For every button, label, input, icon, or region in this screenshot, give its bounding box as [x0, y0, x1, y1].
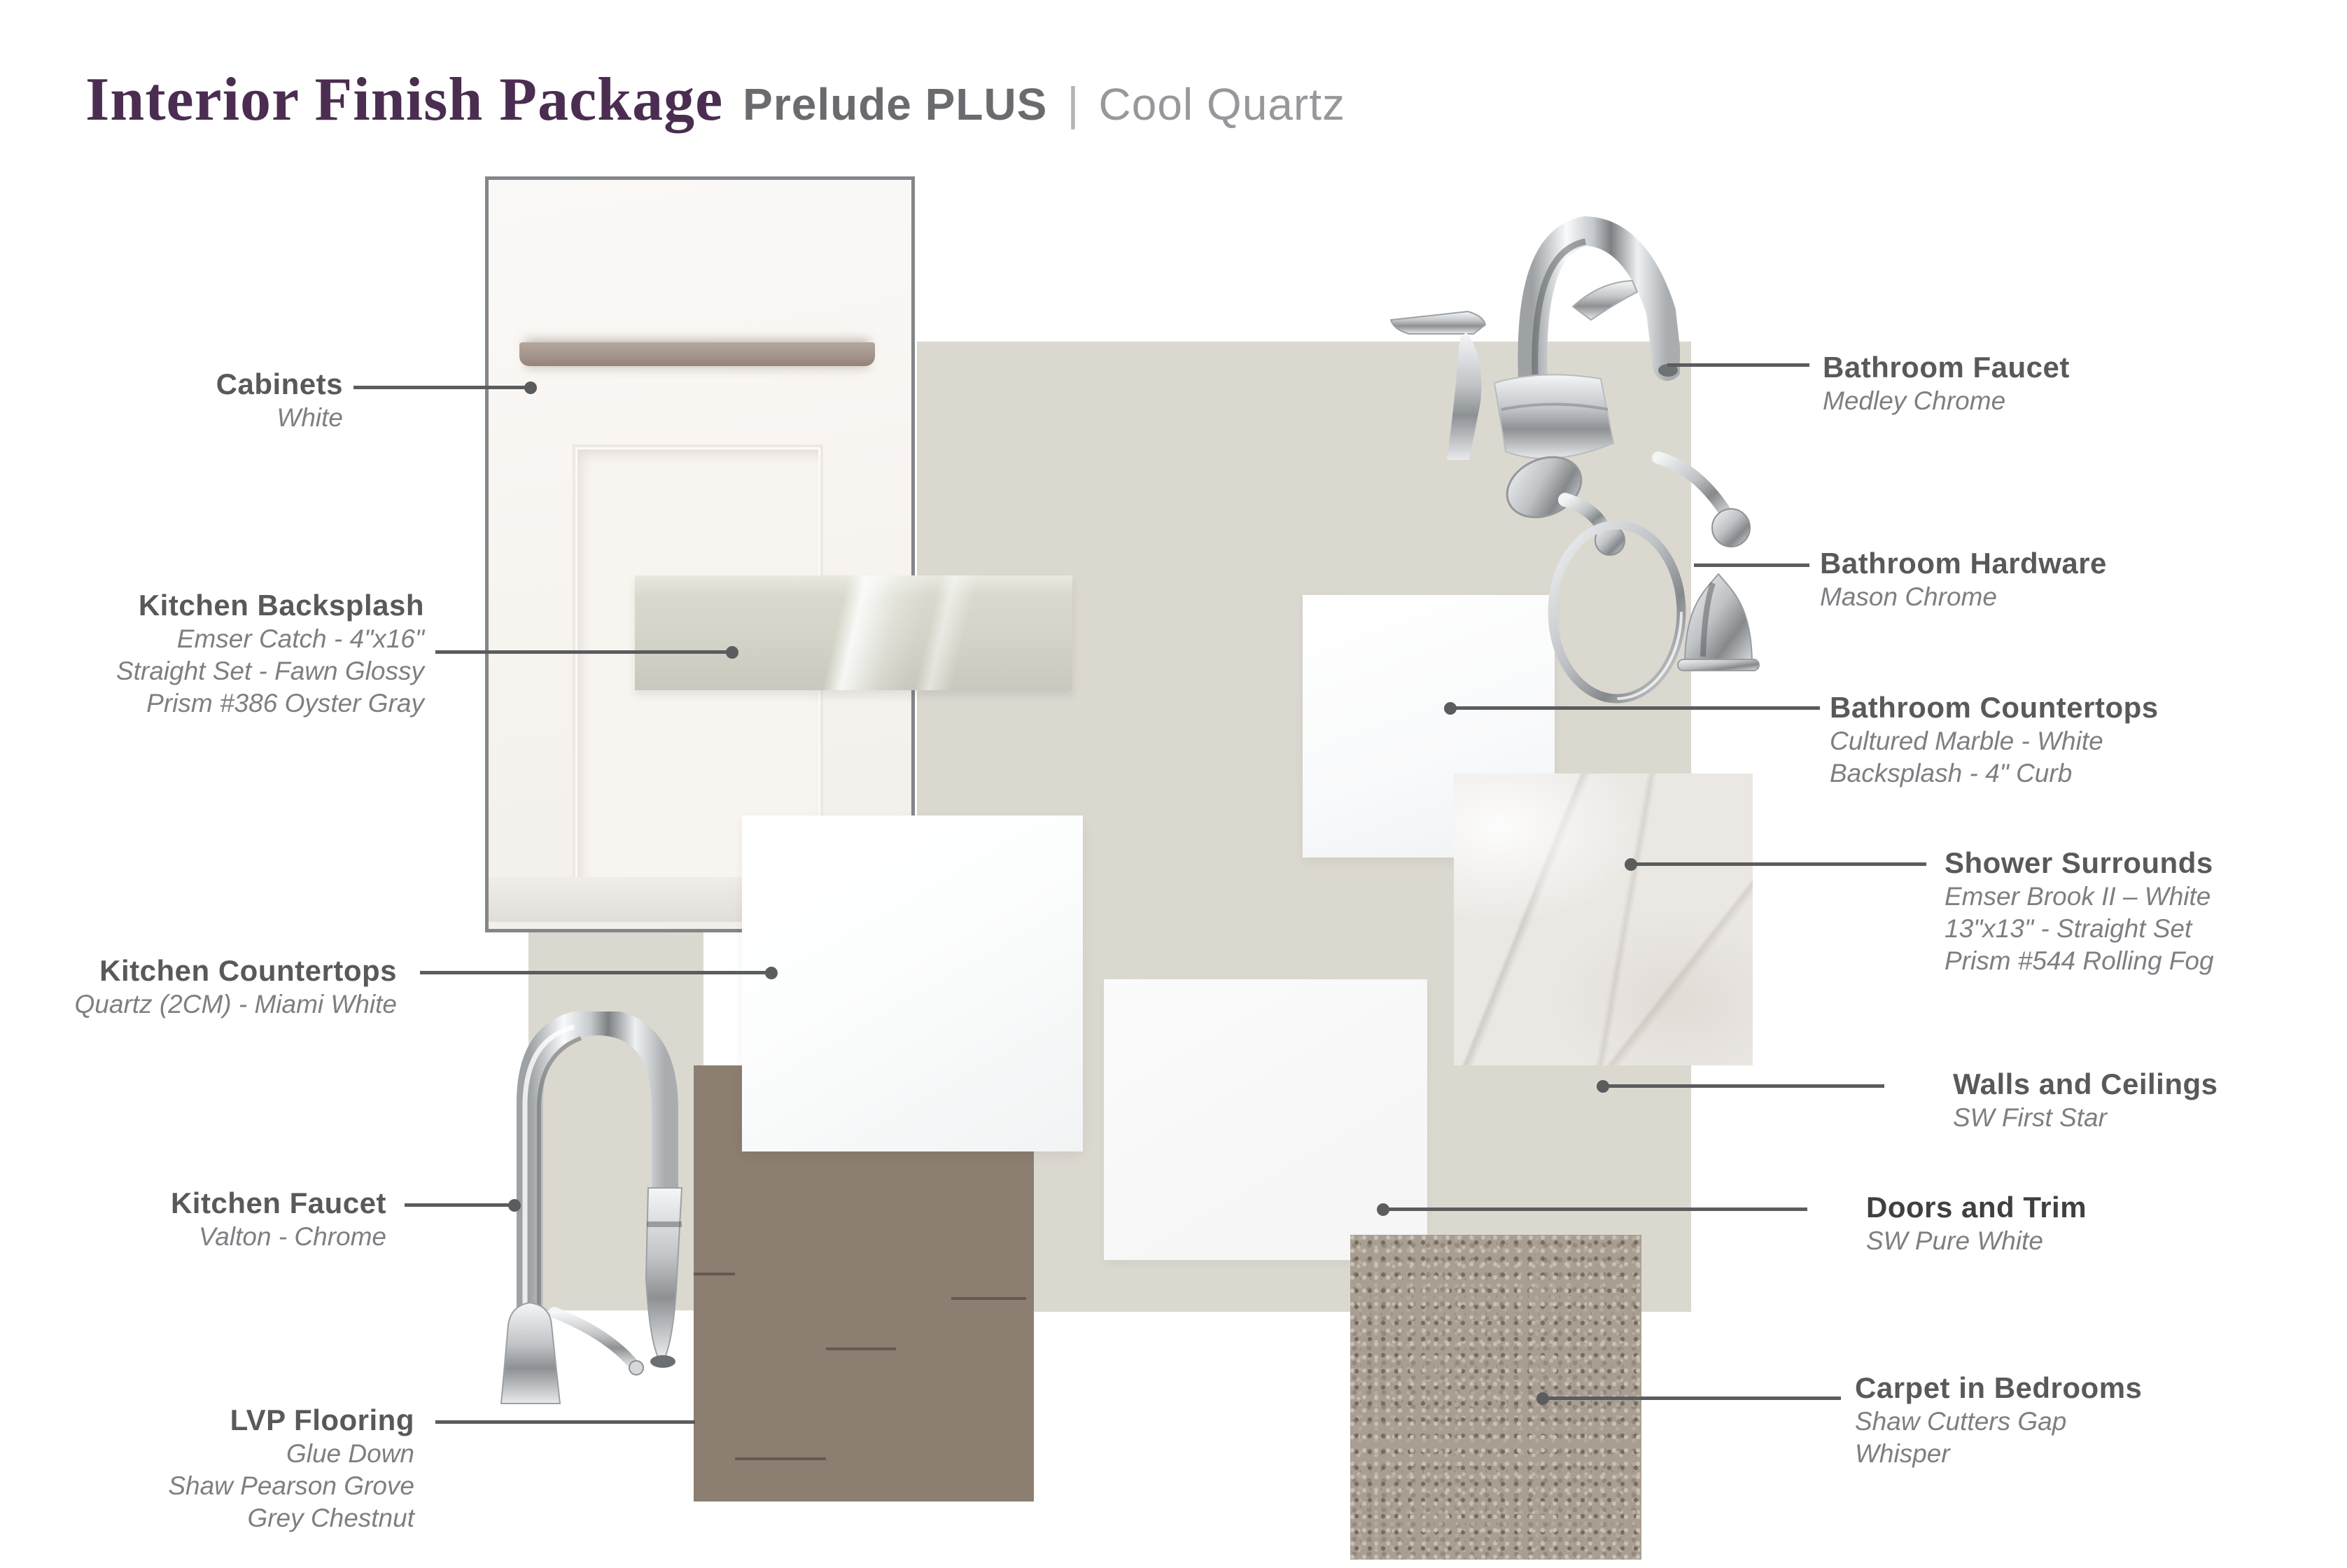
label-kitchen-countertops-sub: Quartz (2CM) - Miami White: [47, 988, 397, 1021]
label-bathroom-faucet-sub: Medley Chrome: [1823, 385, 2271, 417]
kitchen-backsplash-tile-sample: [635, 575, 1072, 690]
page-title: Interior Finish Package Prelude PLUS | C…: [85, 64, 1345, 135]
bathroom-faucet-image: [1389, 199, 1680, 462]
leader-dot: [1377, 1203, 1389, 1216]
leader-dot: [726, 646, 738, 659]
label-carpet-bedrooms-heading: Carpet in Bedrooms: [1855, 1371, 2303, 1406]
label-bathroom-countertops-sub: Cultured Marble - White: [1830, 725, 2320, 757]
label-shower-surrounds-heading: Shower Surrounds: [1945, 846, 2337, 881]
leader-dot: [1625, 858, 1637, 871]
plank-joint: [694, 1273, 735, 1275]
label-doors-trim: Doors and Trim SW Pure White: [1866, 1190, 2244, 1257]
label-walls-ceilings-heading: Walls and Ceilings: [1953, 1067, 2331, 1102]
label-doors-trim-heading: Doors and Trim: [1866, 1190, 2244, 1225]
label-lvp-flooring-sub: Glue Down: [64, 1438, 414, 1470]
leader-carpet: [1543, 1396, 1841, 1400]
label-cabinets-sub: White: [63, 402, 343, 434]
label-shower-surrounds: Shower Surrounds Emser Brook II – White …: [1945, 846, 2337, 977]
label-kitchen-backsplash-sub: Straight Set - Fawn Glossy: [74, 655, 424, 687]
label-shower-surrounds-sub: Prism #544 Rolling Fog: [1945, 945, 2337, 977]
cabinet-drawer-groove: [519, 342, 875, 366]
label-cabinets: Cabinets White: [63, 367, 343, 434]
label-bathroom-faucet-heading: Bathroom Faucet: [1823, 350, 2271, 385]
label-lvp-flooring: LVP Flooring Glue Down Shaw Pearson Grov…: [64, 1403, 414, 1534]
doors-and-trim-sample: [1104, 979, 1427, 1260]
label-bathroom-countertops: Bathroom Countertops Cultured Marble - W…: [1830, 690, 2320, 790]
label-kitchen-faucet-heading: Kitchen Faucet: [36, 1186, 386, 1221]
label-walls-ceilings-sub: SW First Star: [1953, 1102, 2331, 1134]
label-kitchen-countertops-heading: Kitchen Countertops: [47, 953, 397, 988]
leader-cabinets: [353, 386, 531, 389]
leader-lvp-flooring: [435, 1420, 695, 1424]
label-lvp-flooring-sub: Shaw Pearson Grove: [64, 1470, 414, 1502]
plank-joint: [735, 1457, 826, 1460]
leader-dot: [1536, 1392, 1549, 1405]
label-kitchen-faucet: Kitchen Faucet Valton - Chrome: [36, 1186, 386, 1253]
label-kitchen-faucet-sub: Valton - Chrome: [36, 1221, 386, 1253]
label-bathroom-countertops-heading: Bathroom Countertops: [1830, 690, 2320, 725]
label-lvp-flooring-heading: LVP Flooring: [64, 1403, 414, 1438]
leader-bathroom-countertops: [1450, 706, 1820, 710]
leader-shower-surrounds: [1631, 862, 1926, 866]
label-kitchen-backsplash-sub: Emser Catch - 4"x16": [74, 623, 424, 655]
label-cabinets-heading: Cabinets: [63, 367, 343, 402]
leader-doors-trim: [1383, 1207, 1807, 1211]
label-shower-surrounds-sub: Emser Brook II – White: [1945, 881, 2337, 913]
label-kitchen-backsplash: Kitchen Backsplash Emser Catch - 4"x16" …: [74, 588, 424, 720]
label-bathroom-countertops-sub: Backsplash - 4" Curb: [1830, 757, 2320, 790]
title-variant-name: Cool Quartz: [1099, 78, 1345, 130]
label-doors-trim-sub: SW Pure White: [1866, 1225, 2244, 1257]
label-kitchen-countertops: Kitchen Countertops Quartz (2CM) - Miami…: [47, 953, 397, 1021]
label-carpet-bedrooms: Carpet in Bedrooms Shaw Cutters Gap Whis…: [1855, 1371, 2303, 1470]
plank-joint: [826, 1347, 896, 1350]
plank-joint: [951, 1297, 1026, 1300]
label-bathroom-hardware-heading: Bathroom Hardware: [1820, 546, 2296, 581]
tile-gloss-highlight: [635, 575, 1072, 690]
label-bathroom-hardware: Bathroom Hardware Mason Chrome: [1820, 546, 2296, 613]
leader-dot: [508, 1199, 521, 1212]
label-walls-ceilings: Walls and Ceilings SW First Star: [1953, 1067, 2331, 1134]
label-bathroom-hardware-sub: Mason Chrome: [1820, 581, 2296, 613]
leader-dot: [524, 381, 537, 394]
kitchen-countertop-sample: [742, 815, 1083, 1151]
title-main: Interior Finish Package: [85, 64, 723, 135]
label-carpet-bedrooms-sub: Shaw Cutters Gap: [1855, 1406, 2303, 1438]
leader-dot: [1597, 1080, 1609, 1093]
interior-finish-package-board: Interior Finish Package Prelude PLUS | C…: [0, 0, 2347, 1568]
leader-bathroom-faucet: [1667, 363, 1809, 367]
label-carpet-bedrooms-sub: Whisper: [1855, 1438, 2303, 1470]
title-package-name: Prelude PLUS: [743, 78, 1047, 130]
kitchen-faucet-image: [490, 1011, 689, 1407]
title-divider: |: [1067, 77, 1079, 130]
leader-kitchen-backsplash: [435, 650, 732, 654]
leader-bathroom-hardware: [1694, 563, 1809, 567]
leader-kitchen-faucet: [405, 1203, 514, 1207]
robe-hook-image: [1648, 433, 1788, 674]
leader-dot: [1444, 702, 1457, 715]
label-lvp-flooring-sub: Grey Chestnut: [64, 1502, 414, 1534]
shower-surround-tile-sample: [1454, 773, 1753, 1065]
label-kitchen-backsplash-heading: Kitchen Backsplash: [74, 588, 424, 623]
leader-walls-ceilings: [1603, 1084, 1884, 1088]
leader-dot: [765, 967, 778, 979]
label-shower-surrounds-sub: 13"x13" - Straight Set: [1945, 913, 2337, 945]
label-bathroom-faucet: Bathroom Faucet Medley Chrome: [1823, 350, 2271, 417]
leader-kitchen-countertops: [420, 971, 771, 974]
label-kitchen-backsplash-sub: Prism #386 Oyster Gray: [74, 687, 424, 720]
